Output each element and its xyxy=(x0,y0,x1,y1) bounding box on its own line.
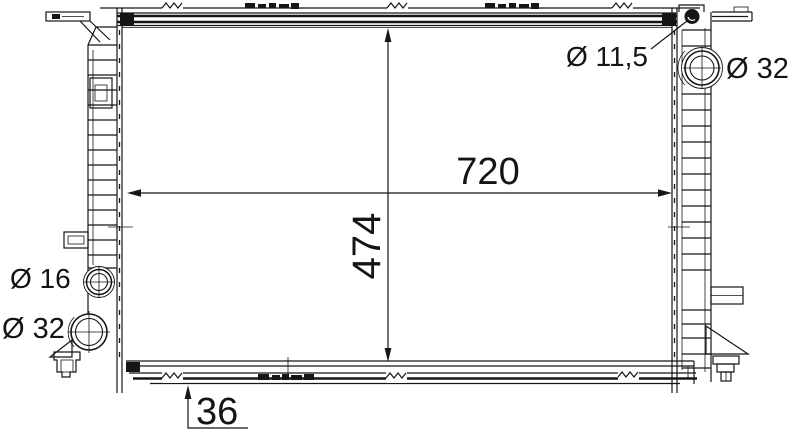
end-cap-right xyxy=(662,13,676,26)
drawing-canvas: 720 474 36 Ø 11,5 Ø 32 Ø 16 Ø 32 xyxy=(0,0,800,442)
left-small-port-label: Ø 16 xyxy=(10,263,71,294)
left-small-port xyxy=(83,266,115,298)
technical-drawing: 720 474 36 Ø 11,5 Ø 32 Ø 16 Ø 32 xyxy=(0,0,800,442)
height-dimension-label: 474 xyxy=(345,213,389,280)
top-right-port-label: Ø 32 xyxy=(726,53,789,85)
end-cap-bottom-left xyxy=(126,362,140,372)
left-large-port-label: Ø 32 xyxy=(2,313,65,345)
drain-detail xyxy=(258,374,314,380)
width-dimension-label: 720 xyxy=(456,151,519,193)
depth-dimension-label: 36 xyxy=(196,391,238,433)
hole-diameter-label: Ø 11,5 xyxy=(566,41,648,72)
